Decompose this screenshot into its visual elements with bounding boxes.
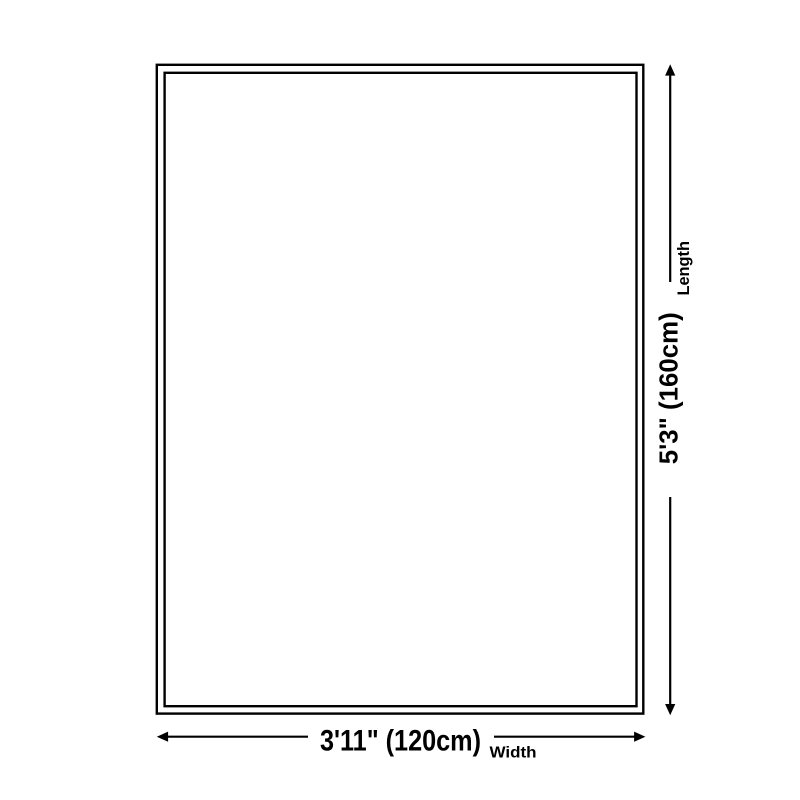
svg-text:5'3" (160cm): 5'3" (160cm) <box>656 312 684 464</box>
svg-text:Length: Length <box>674 241 693 296</box>
svg-text:Width: Width <box>490 745 537 762</box>
svg-text:3'11" (120cm): 3'11" (120cm) <box>320 725 481 758</box>
